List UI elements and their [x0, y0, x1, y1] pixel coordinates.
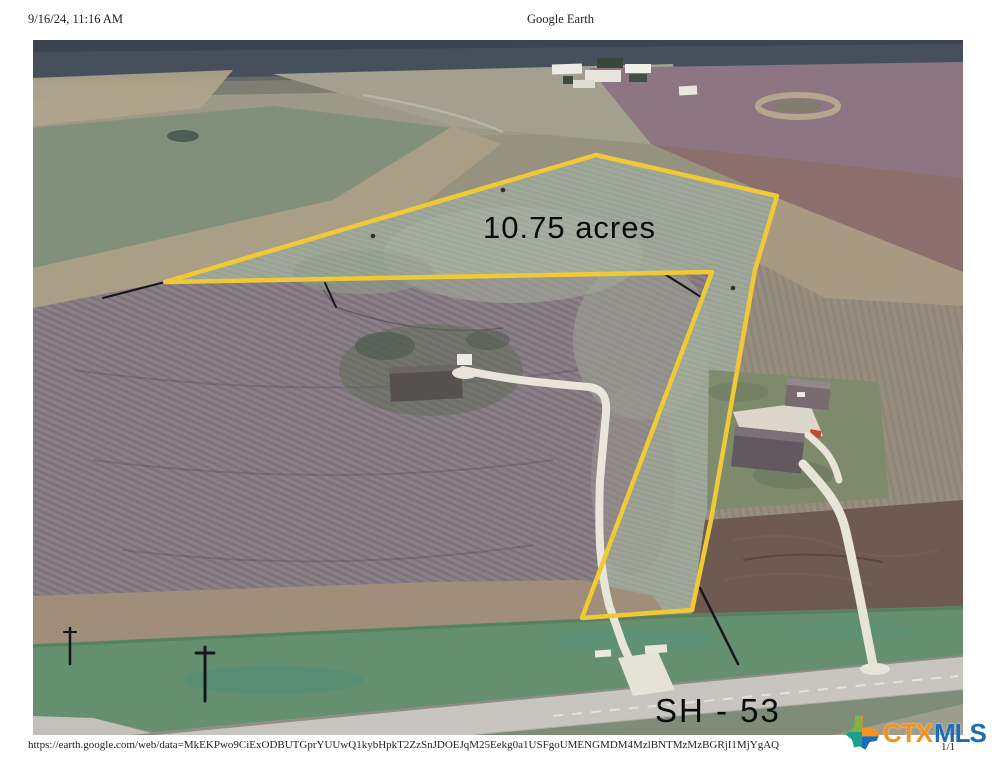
printed-page: { "header": { "datetime": "9/16/24, 11:1… [0, 0, 995, 768]
barn-site [339, 324, 523, 416]
highway-label: SH - 53 [655, 692, 781, 730]
aerial-photo-scene [33, 40, 963, 735]
header-datetime: 9/16/24, 11:16 AM [28, 12, 123, 27]
shed-building [785, 378, 832, 410]
page-number: 1/1 [941, 741, 955, 753]
footer-url: https://earth.google.com/web/data=MkEKPw… [28, 739, 779, 751]
texas-icon [843, 713, 881, 753]
ctxmls-logo: CTX MLS [843, 711, 986, 755]
parcel-area-label: 10.75 acres [483, 210, 656, 246]
barn-building [389, 364, 463, 402]
aerial-photo: 10.75 acres SH - 53 [33, 40, 963, 735]
logo-ctx-text: CTX [883, 718, 932, 749]
page-title: Google Earth [527, 12, 594, 27]
large-barn-building [731, 426, 805, 473]
